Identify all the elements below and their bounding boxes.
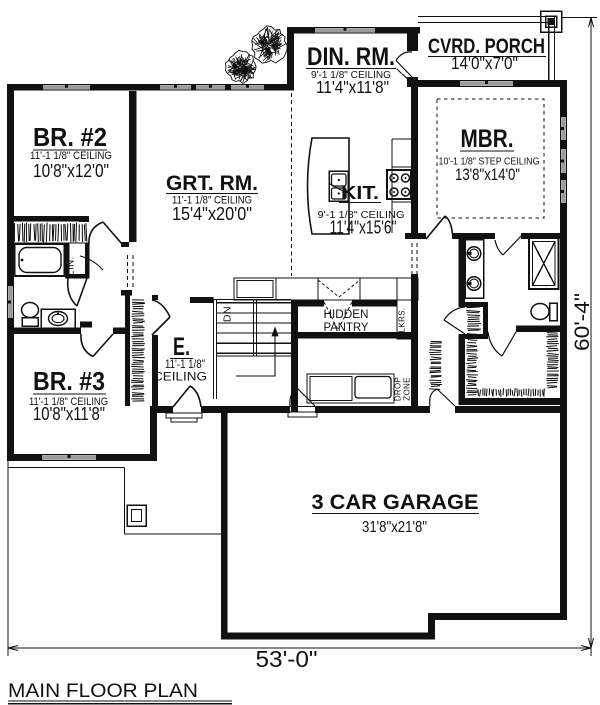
svg-text:MAIN FLOOR PLAN: MAIN FLOOR PLAN [8, 681, 198, 702]
svg-text:10'8"x12'0": 10'8"x12'0" [33, 161, 109, 181]
svg-text:11'4"x15'6": 11'4"x15'6" [330, 218, 397, 238]
svg-text:LKRS.: LKRS. [398, 308, 407, 333]
svg-text:ZONE: ZONE [403, 377, 412, 400]
svg-text:31'8"x21'8": 31'8"x21'8" [362, 519, 427, 536]
svg-text:PANTRY: PANTRY [324, 322, 369, 334]
svg-text:10'8"x11'8": 10'8"x11'8" [33, 404, 105, 424]
svg-text:14'0"x7'0": 14'0"x7'0" [451, 53, 518, 73]
svg-text:DN: DN [222, 306, 234, 322]
svg-text:60'-4": 60'-4" [571, 293, 594, 351]
svg-text:KIT.: KIT. [341, 183, 379, 203]
svg-text:15'4"x20'0": 15'4"x20'0" [172, 204, 252, 224]
svg-text:CEILING: CEILING [153, 370, 207, 384]
svg-text:11'4"x11'8": 11'4"x11'8" [316, 77, 389, 97]
svg-text:3 CAR GARAGE: 3 CAR GARAGE [312, 491, 479, 514]
svg-text:DIN. RM.: DIN. RM. [307, 43, 395, 71]
svg-text:BR. #2: BR. #2 [33, 122, 107, 152]
svg-text:LIN.: LIN. [66, 256, 77, 275]
svg-text:53'-0": 53'-0" [256, 646, 318, 672]
svg-text:13'8"x14'0": 13'8"x14'0" [455, 165, 520, 184]
svg-text:MBR.: MBR. [461, 125, 514, 153]
svg-text:DROP: DROP [394, 377, 403, 401]
svg-text:HIDDEN: HIDDEN [324, 309, 369, 321]
svg-text:BR. #3: BR. #3 [33, 366, 105, 396]
svg-text:GRT. RM.: GRT. RM. [166, 172, 258, 195]
